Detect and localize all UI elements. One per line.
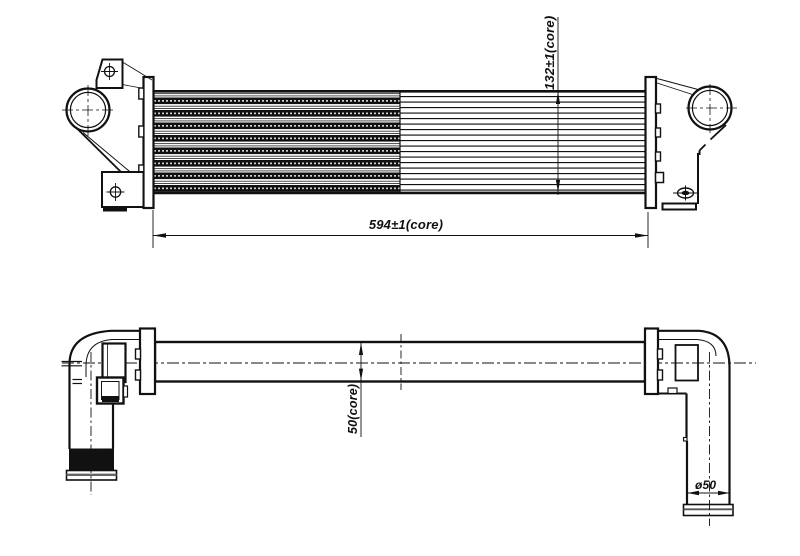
- right-flange-plate: [645, 329, 658, 395]
- dimension-label-pipe-diameter: ø50: [695, 478, 716, 492]
- drawing-linework: [0, 0, 800, 556]
- core-fins-hatched-half: [153, 92, 400, 193]
- left-flange-plate: [140, 329, 155, 395]
- left-bottom-bracket: [102, 172, 144, 207]
- dimension-label-core-width: 594±1(core): [346, 218, 466, 232]
- right-tank-foot: [663, 204, 697, 210]
- dimension-label-core-depth: 50(core): [346, 384, 360, 434]
- core-tubes-plain-half: [400, 92, 646, 193]
- left-bracket-foot: [103, 207, 127, 212]
- left-hose-band: [69, 449, 114, 471]
- core-plan-bar: [155, 342, 645, 382]
- left-mount-bracket: [103, 344, 126, 383]
- dimension-label-core-height: 132±1(core): [543, 16, 557, 90]
- technical-drawing-canvas: 594±1(core) 132±1(core) 50(core) ø50: [0, 0, 800, 556]
